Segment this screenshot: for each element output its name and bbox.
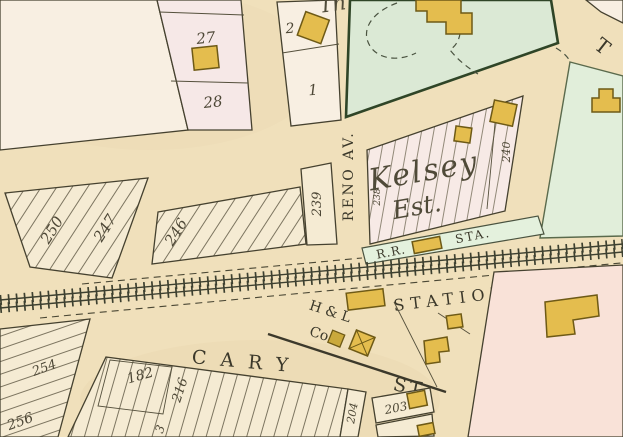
lot-label-27: 27 (194, 28, 216, 48)
lot-label-2: 2 (284, 21, 295, 38)
kelsey-block-building (454, 126, 472, 143)
small-building (446, 314, 463, 329)
historic-atlas-map: 27 28 2 1 Th T 250 247 246 239 RENO AV. … (0, 0, 623, 437)
lot-203-building (407, 390, 428, 408)
lot-240-building (490, 100, 517, 126)
atlas-map-canvas: 27 28 2 1 Th T 250 247 246 239 RENO AV. … (0, 0, 623, 437)
lot-label-1: 1 (308, 81, 319, 100)
lot-27-building (192, 46, 219, 70)
lot-label-28: 28 (202, 92, 224, 112)
block-top-left (0, 0, 188, 150)
station-building (346, 289, 385, 310)
lot-label-240: 240 (500, 142, 513, 164)
rose-block (468, 265, 623, 437)
street-label-reno-av: RENO AV. (341, 131, 357, 221)
lot-label-239: 239 (310, 192, 325, 218)
partial-lot-building (417, 423, 435, 437)
